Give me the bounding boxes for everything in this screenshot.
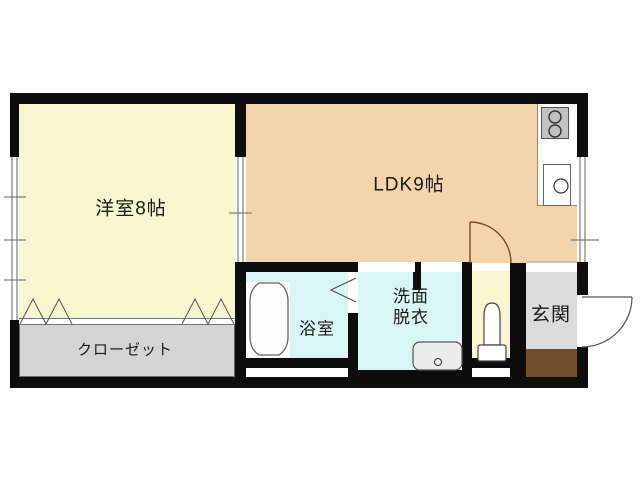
wall-bottom	[10, 377, 588, 388]
label-closet: クローゼット	[77, 339, 173, 360]
genkan-threshold	[526, 262, 577, 272]
wall-bath-wash-divider	[348, 313, 358, 377]
bath-fold-door-gap	[348, 272, 358, 313]
label-washroom-line1: 洗面	[393, 286, 429, 307]
washroom-door-track	[358, 262, 415, 272]
bath-bottom-gap	[248, 368, 346, 377]
sliding-door-western-ldk	[235, 157, 246, 262]
room-toilet	[472, 271, 510, 358]
label-washroom: 洗面 脱衣	[393, 286, 429, 328]
wall-wash-bottom	[358, 370, 462, 377]
label-genkan: 玄関	[531, 300, 571, 327]
toilet-bottom-gap	[472, 368, 510, 377]
wall-toilet-genkan-divider	[510, 263, 526, 377]
kitchen-sink-icon	[543, 164, 571, 206]
closet-door-track	[19, 318, 235, 325]
wall-bath-bottom	[246, 358, 348, 368]
entry-door-opening	[577, 295, 588, 347]
wall-partition-lower	[235, 262, 246, 377]
wall-top	[10, 93, 588, 104]
label-washroom-line2: 脱衣	[393, 307, 429, 328]
genkan-step	[526, 349, 577, 377]
label-ldk: LDK9帖	[373, 170, 445, 197]
entry-door-icon	[582, 297, 632, 347]
window-left	[10, 157, 19, 320]
floor-plan: 洋室8帖 LDK9帖 クローゼット 浴室 洗面 脱衣 玄関	[0, 0, 640, 480]
label-western-room: 洋室8帖	[95, 194, 167, 221]
wall-partition-upper	[235, 104, 246, 157]
wall-bath-top	[246, 262, 358, 272]
washroom-doorway	[421, 262, 462, 272]
label-bathroom: 浴室	[299, 315, 335, 340]
stove-burners-icon	[541, 107, 569, 139]
toilet-doorway	[472, 263, 510, 271]
bathtub-surround	[246, 282, 290, 358]
window-right	[577, 157, 588, 262]
wall-wash-toilet-divider	[462, 262, 472, 377]
wall-toilet-bottom	[472, 358, 510, 368]
